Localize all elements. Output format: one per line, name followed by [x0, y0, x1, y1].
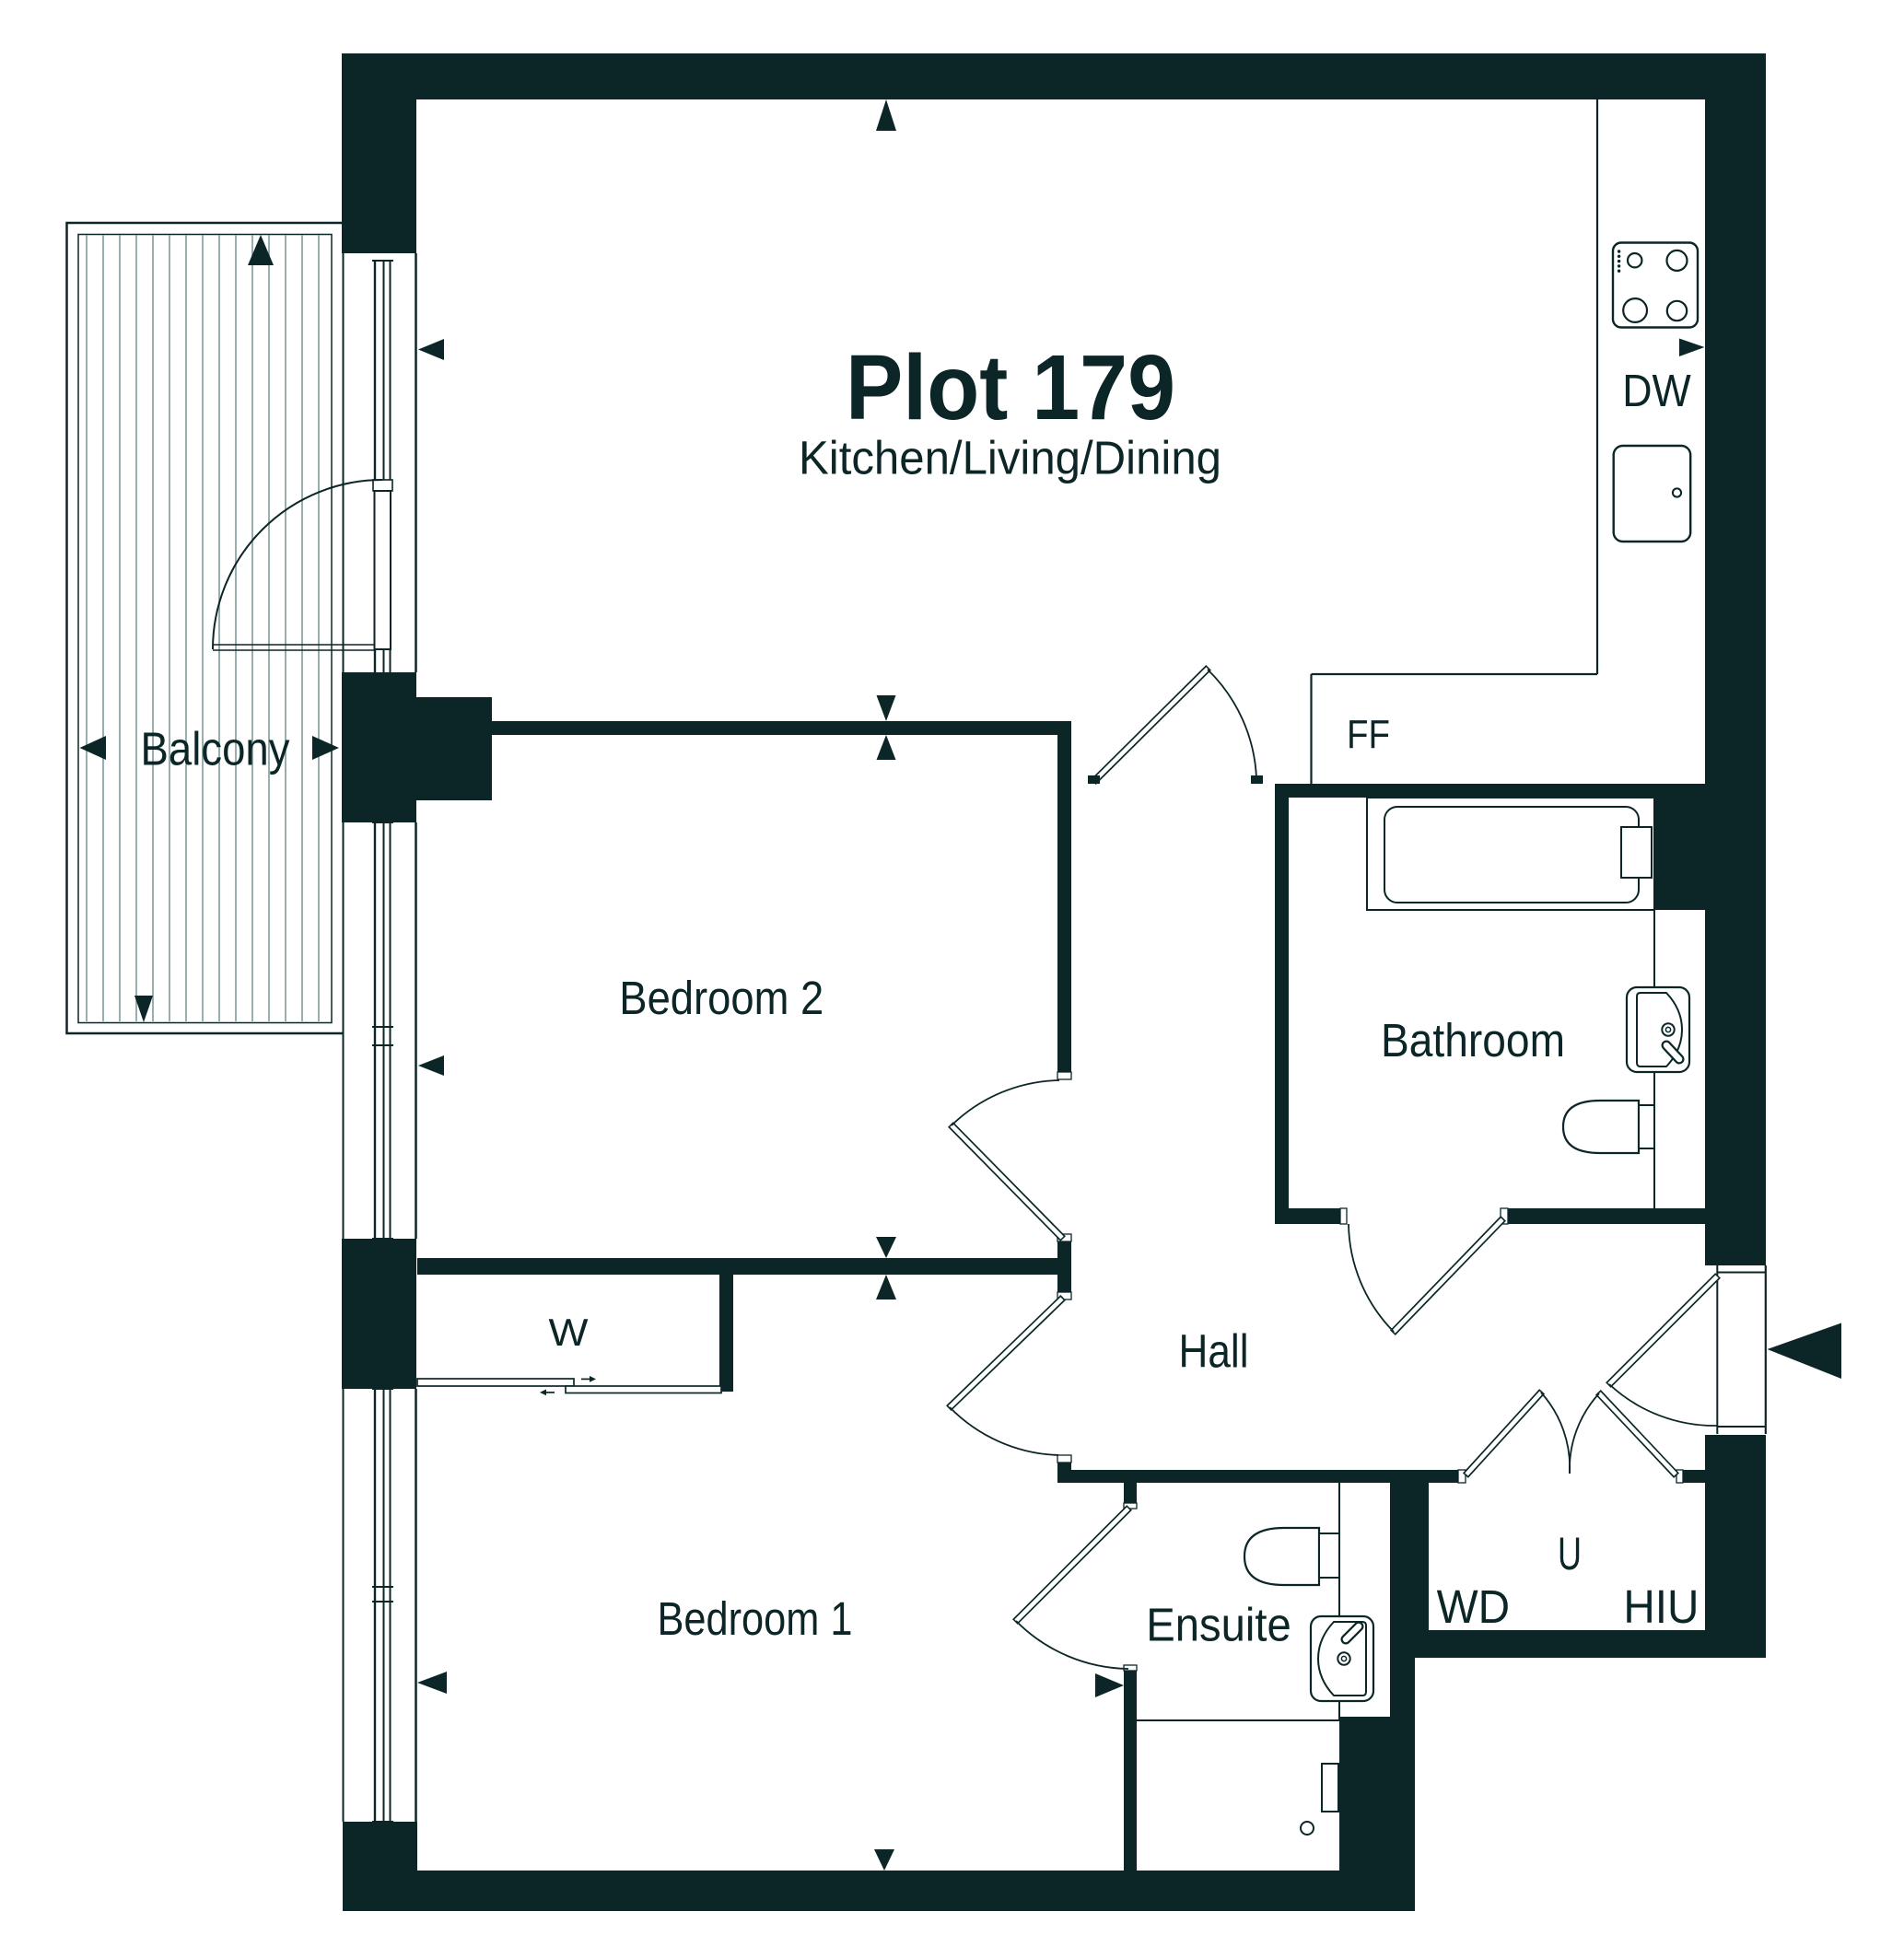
- svg-text:Bathroom: Bathroom: [1381, 1014, 1565, 1066]
- svg-text:W: W: [549, 1311, 589, 1354]
- svg-text:Plot 179: Plot 179: [846, 336, 1175, 439]
- svg-text:U: U: [1558, 1528, 1582, 1579]
- svg-text:DW: DW: [1622, 367, 1691, 416]
- svg-text:Bedroom 2: Bedroom 2: [619, 972, 824, 1024]
- svg-text:HIU: HIU: [1623, 1580, 1699, 1633]
- svg-text:Kitchen/Living/Dining: Kitchen/Living/Dining: [799, 432, 1221, 484]
- svg-text:Hall: Hall: [1179, 1325, 1249, 1378]
- svg-text:Balcony: Balcony: [141, 723, 290, 775]
- svg-text:FF: FF: [1347, 712, 1390, 757]
- svg-text:Bedroom 1: Bedroom 1: [658, 1592, 853, 1645]
- svg-text:WD: WD: [1437, 1580, 1511, 1633]
- svg-text:Ensuite: Ensuite: [1146, 1598, 1291, 1650]
